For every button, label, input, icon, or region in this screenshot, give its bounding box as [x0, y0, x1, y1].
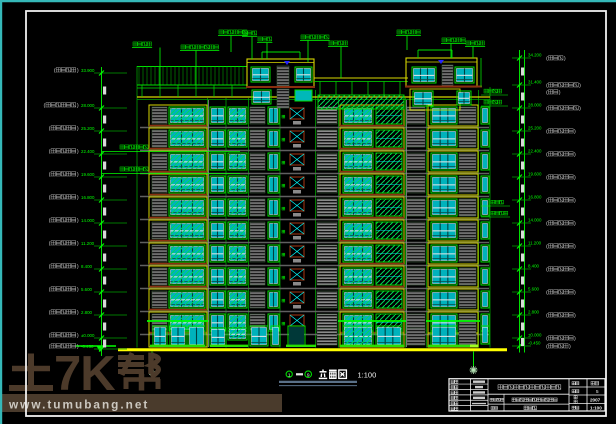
svg-text:(: ( — [546, 198, 548, 204]
svg-text:16.800: 16.800 — [81, 195, 95, 200]
svg-text:): ) — [579, 106, 581, 112]
svg-text:): ) — [569, 344, 571, 350]
svg-text:): ) — [77, 287, 79, 293]
svg-text:11.200: 11.200 — [81, 241, 95, 246]
svg-text:): ) — [574, 336, 576, 342]
svg-text:11.200: 11.200 — [528, 241, 542, 246]
svg-text:): ) — [574, 221, 576, 227]
svg-text:5: 5 — [596, 389, 599, 394]
svg-text:): ) — [77, 172, 79, 178]
svg-text:): ) — [574, 244, 576, 250]
svg-text:): ) — [77, 218, 79, 224]
svg-text:28.000: 28.000 — [81, 103, 95, 108]
svg-text:(: ( — [49, 241, 51, 247]
svg-text:(: ( — [546, 90, 548, 96]
svg-text:): ) — [77, 264, 79, 270]
svg-text:±0.000: ±0.000 — [81, 333, 95, 338]
svg-text:): ) — [77, 103, 79, 109]
svg-text:): ) — [574, 290, 576, 296]
svg-text:): ) — [559, 90, 561, 96]
svg-text:(: ( — [49, 264, 51, 270]
svg-text:19.600: 19.600 — [528, 172, 542, 177]
svg-text:(: ( — [546, 336, 548, 342]
svg-text:(: ( — [546, 175, 548, 181]
svg-text:14.000: 14.000 — [81, 218, 95, 223]
svg-text:): ) — [574, 313, 576, 319]
svg-text:8.400: 8.400 — [81, 264, 93, 269]
svg-text:1:100: 1:100 — [358, 371, 377, 380]
svg-text:): ) — [574, 129, 576, 135]
svg-text:34.200: 34.200 — [528, 53, 542, 58]
svg-text:-0.450: -0.450 — [528, 341, 541, 346]
svg-text:(: ( — [546, 129, 548, 135]
svg-text:(: ( — [49, 218, 51, 224]
svg-text:(: ( — [49, 126, 51, 132]
svg-text:): ) — [579, 83, 581, 89]
svg-text:(: ( — [546, 290, 548, 296]
svg-text:7K: 7K — [54, 347, 115, 401]
svg-text:): ) — [77, 333, 79, 339]
svg-text:(: ( — [546, 56, 548, 62]
svg-text:): ) — [574, 267, 576, 273]
svg-text:5.600: 5.600 — [81, 287, 93, 292]
svg-text:19.600: 19.600 — [81, 172, 95, 177]
svg-text:): ) — [77, 310, 79, 316]
svg-text:2.800: 2.800 — [528, 310, 540, 315]
svg-text:): ) — [77, 241, 79, 247]
svg-text:31.400: 31.400 — [528, 80, 542, 85]
svg-text:): ) — [574, 198, 576, 204]
svg-text:±0.000: ±0.000 — [528, 333, 542, 338]
svg-text:28.000: 28.000 — [528, 103, 542, 108]
svg-text:(: ( — [49, 333, 51, 339]
svg-text:1:100: 1:100 — [590, 405, 602, 410]
svg-text:2.800: 2.800 — [81, 310, 93, 315]
svg-text:www.tumubang.net: www.tumubang.net — [8, 398, 149, 412]
svg-text:9: 9 — [307, 372, 310, 378]
svg-text:5.600: 5.600 — [528, 287, 540, 292]
svg-text:(: ( — [546, 152, 548, 158]
svg-text:25.200: 25.200 — [81, 126, 95, 131]
svg-text:): ) — [77, 195, 79, 201]
svg-text:): ) — [574, 175, 576, 181]
svg-text:): ) — [77, 68, 79, 74]
svg-text:(: ( — [546, 244, 548, 250]
svg-text:(: ( — [546, 313, 548, 319]
svg-text:(: ( — [54, 68, 56, 74]
svg-text:8.400: 8.400 — [528, 264, 540, 269]
svg-text:25.200: 25.200 — [528, 126, 542, 131]
svg-text:(: ( — [44, 103, 46, 109]
svg-text:(: ( — [49, 195, 51, 201]
svg-text:33.900: 33.900 — [81, 68, 95, 73]
svg-text:): ) — [77, 126, 79, 132]
svg-text:14.000: 14.000 — [528, 218, 542, 223]
svg-text:(: ( — [49, 344, 51, 350]
svg-text:(: ( — [546, 106, 548, 112]
svg-text:(: ( — [49, 172, 51, 178]
svg-text:22.400: 22.400 — [81, 149, 95, 154]
svg-text:(: ( — [546, 344, 548, 350]
svg-text:(: ( — [546, 221, 548, 227]
svg-text:): ) — [564, 56, 566, 62]
svg-text:1: 1 — [288, 372, 291, 378]
svg-text:2007: 2007 — [590, 398, 601, 403]
svg-text:(: ( — [49, 149, 51, 155]
svg-text:): ) — [77, 149, 79, 155]
svg-text:(: ( — [546, 83, 548, 89]
svg-text:(: ( — [49, 287, 51, 293]
svg-text:(: ( — [546, 267, 548, 273]
svg-text:22.400: 22.400 — [528, 149, 542, 154]
svg-text:(: ( — [49, 310, 51, 316]
svg-text:16.800: 16.800 — [528, 195, 542, 200]
svg-text:): ) — [574, 152, 576, 158]
